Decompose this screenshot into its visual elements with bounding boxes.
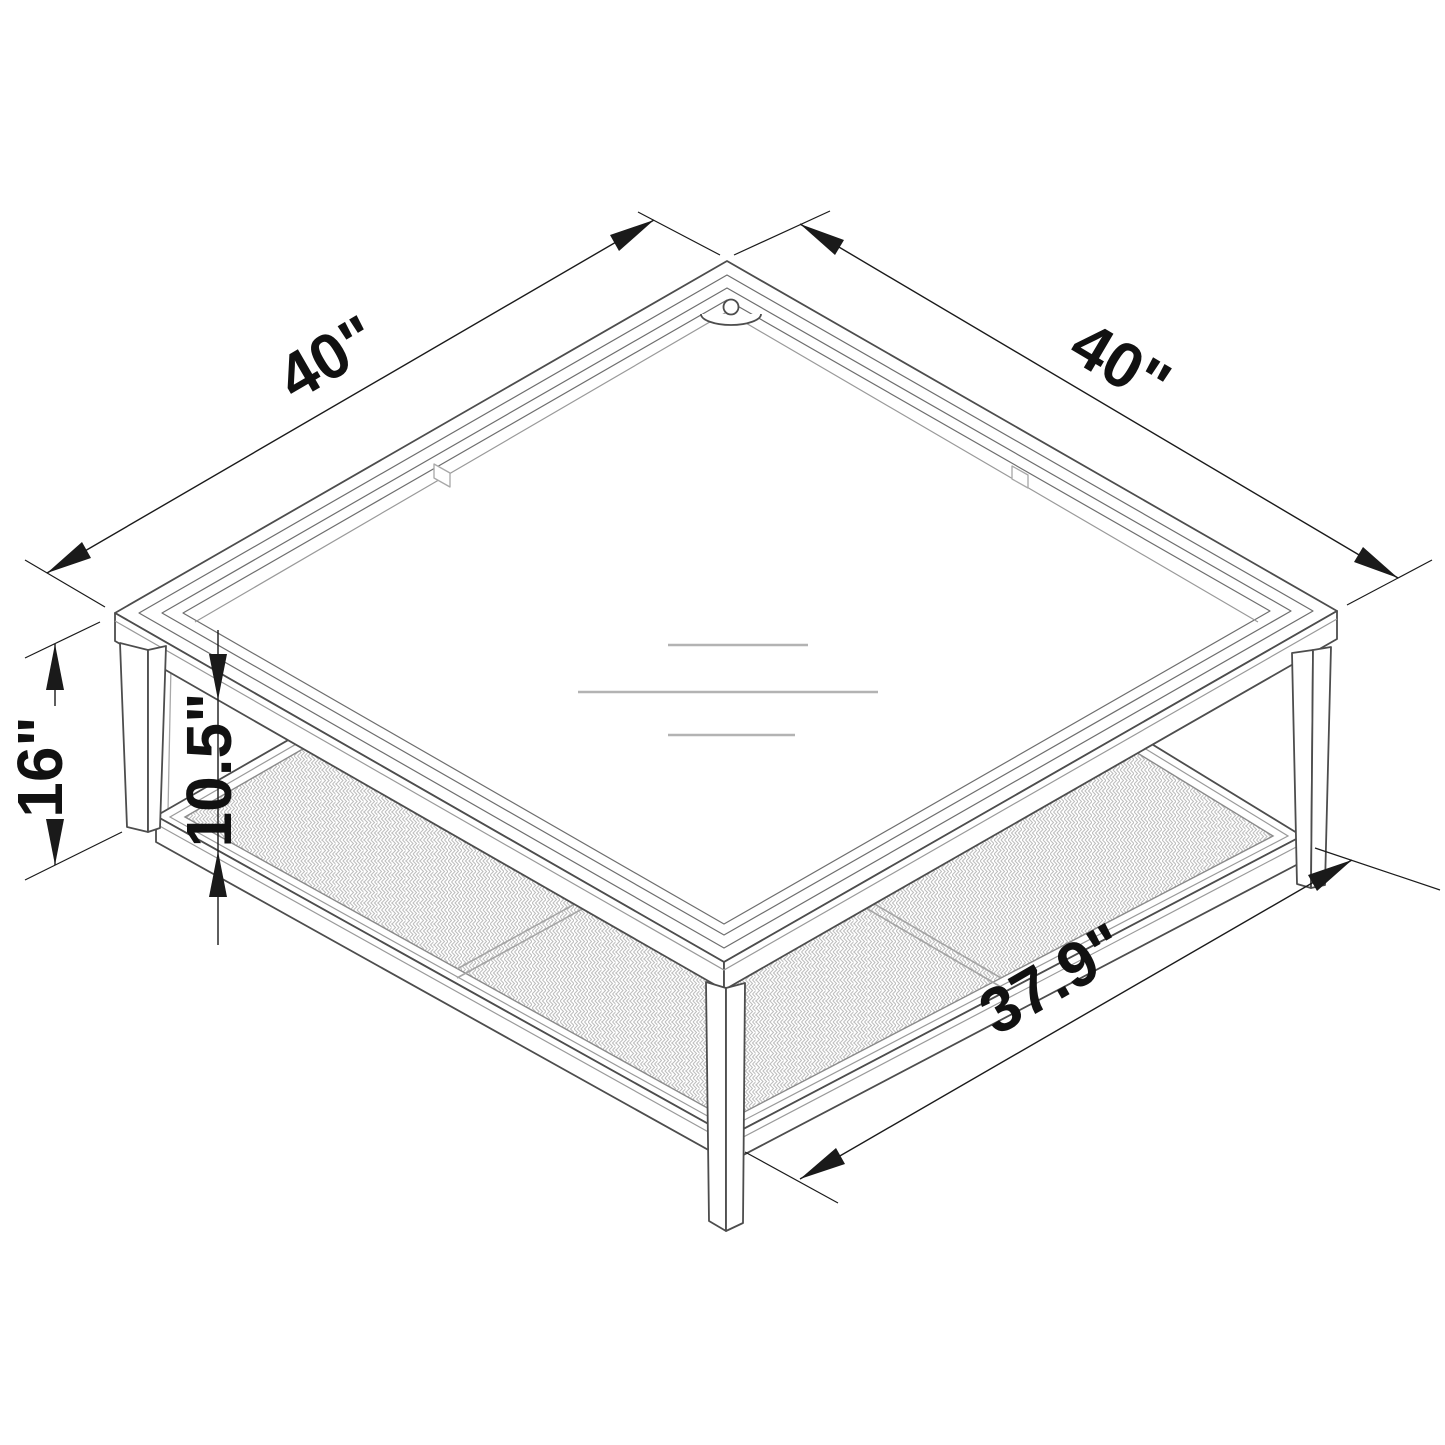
arrow-top-left-low <box>47 542 91 573</box>
arrow-top-right-high <box>800 224 844 255</box>
arrow-top-right-low <box>1354 547 1398 578</box>
ext-height-bottom <box>25 832 122 880</box>
arrow-shelf-left <box>800 1148 845 1179</box>
arrow-height-top <box>46 644 64 690</box>
ext-top-apex-left <box>638 212 720 255</box>
dim-label-top-left: 40" <box>265 301 389 414</box>
leg-mount-screw <box>724 300 739 315</box>
ext-left-corner <box>25 560 105 607</box>
dim-label-top-right: 40" <box>1059 307 1183 421</box>
dim-label-height: 16" <box>4 716 76 818</box>
leg-front <box>706 982 745 1231</box>
ext-height-top <box>25 622 100 658</box>
coffee-table-dimension-diagram: 40" 40" 16" 10.5" 37.9" <box>0 0 1445 1445</box>
arrow-top-left-high <box>610 220 654 251</box>
ext-right-corner <box>1347 560 1432 605</box>
leg-left <box>120 643 166 832</box>
dim-label-clearance: 10.5" <box>173 693 245 848</box>
arrow-height-bottom <box>46 819 64 865</box>
diagram-canvas: 40" 40" 16" 10.5" 37.9" <box>0 0 1445 1445</box>
